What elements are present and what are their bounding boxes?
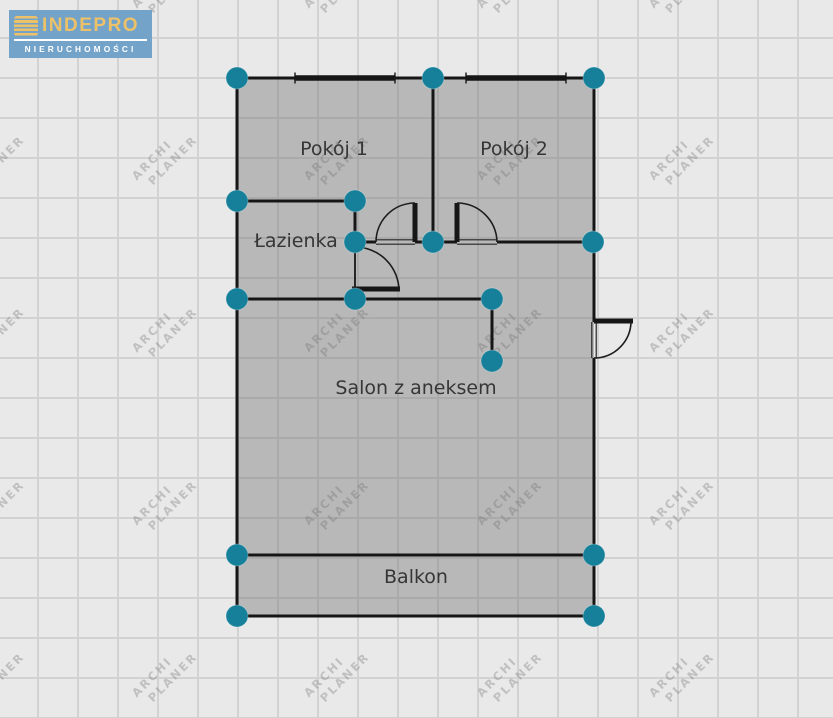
wall-handle[interactable] [422,231,444,253]
wall-handle[interactable] [226,544,248,566]
layers-stack-icon [14,16,38,36]
logo-top-row: INDEPRO [14,14,147,37]
wall-handle[interactable] [344,231,366,253]
wall-handle[interactable] [583,67,605,89]
indepro-logo: INDEPRO NIERUCHOMOŚCI [9,10,152,58]
floor-plan-svg [0,0,833,718]
wall-handle[interactable] [344,288,366,310]
door-swing-arc [594,321,631,358]
wall-handle[interactable] [583,544,605,566]
logo-subtitle: NIERUCHOMOŚCI [14,44,147,54]
wall-handle[interactable] [582,231,604,253]
wall-handle[interactable] [344,190,366,212]
wall-handle[interactable] [481,288,503,310]
apartment-area[interactable] [237,78,594,616]
floorplan-canvas[interactable]: ARCHIPLANERARCHIPLANERARCHIPLANERARCHIPL… [0,0,833,718]
wall-handle[interactable] [226,288,248,310]
logo-title: INDEPRO [42,15,139,37]
logo-divider [14,39,147,41]
wall-handle[interactable] [583,605,605,627]
wall-handle[interactable] [481,350,503,372]
wall-handle[interactable] [226,67,248,89]
wall-handle[interactable] [422,67,444,89]
wall-handle[interactable] [226,605,248,627]
wall-handle[interactable] [226,190,248,212]
